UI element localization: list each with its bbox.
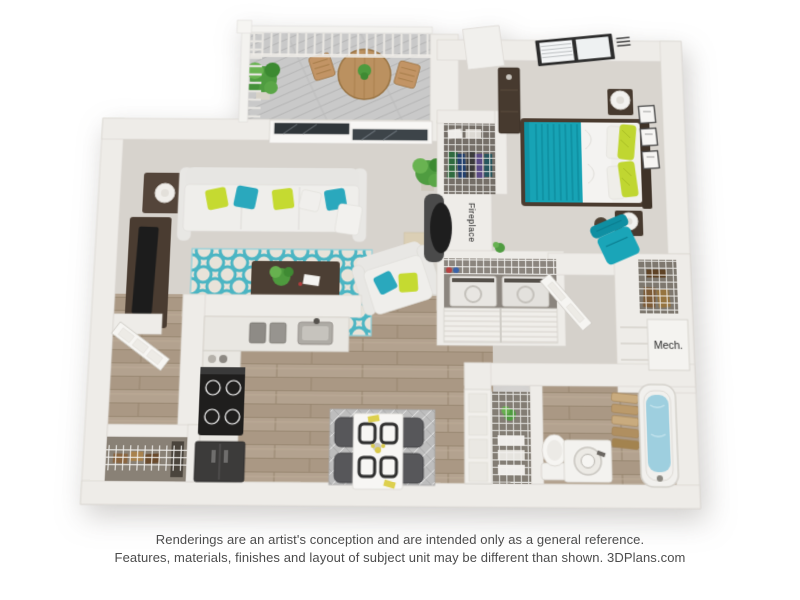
dining-table bbox=[353, 413, 403, 489]
sliding-glass-door bbox=[269, 120, 432, 144]
bed bbox=[520, 116, 652, 209]
sofa bbox=[177, 167, 367, 242]
floor-plan: Fireplace bbox=[0, 12, 800, 542]
tv-console bbox=[124, 217, 172, 328]
nightstand bbox=[607, 89, 633, 115]
floor-plan-image: Fireplace bbox=[0, 12, 800, 542]
bathtub bbox=[638, 384, 679, 487]
linen-closet bbox=[491, 392, 531, 484]
towel-shelf bbox=[608, 392, 643, 449]
vanity-sink bbox=[564, 440, 613, 483]
disclaimer: Renderings are an artist's conception an… bbox=[0, 531, 800, 567]
disclaimer-line-1: Renderings are an artist's conception an… bbox=[0, 531, 800, 549]
coffee-table bbox=[251, 261, 340, 299]
stove bbox=[198, 367, 246, 436]
wire-closet bbox=[638, 260, 678, 314]
mech-label: Mech. bbox=[654, 340, 683, 352]
refrigerator bbox=[194, 441, 245, 481]
washer bbox=[450, 276, 496, 306]
disclaimer-line-2: Features, materials, finishes and layout… bbox=[0, 549, 800, 567]
dining-area bbox=[329, 409, 435, 490]
dresser bbox=[498, 68, 520, 134]
pantry-door bbox=[464, 389, 491, 483]
louvered-doors bbox=[444, 308, 558, 343]
bedroom-closet bbox=[444, 123, 495, 194]
fireplace-label: Fireplace bbox=[467, 203, 477, 243]
coat-closet bbox=[105, 437, 188, 482]
sink bbox=[298, 318, 333, 345]
laundry-closet bbox=[444, 258, 558, 343]
